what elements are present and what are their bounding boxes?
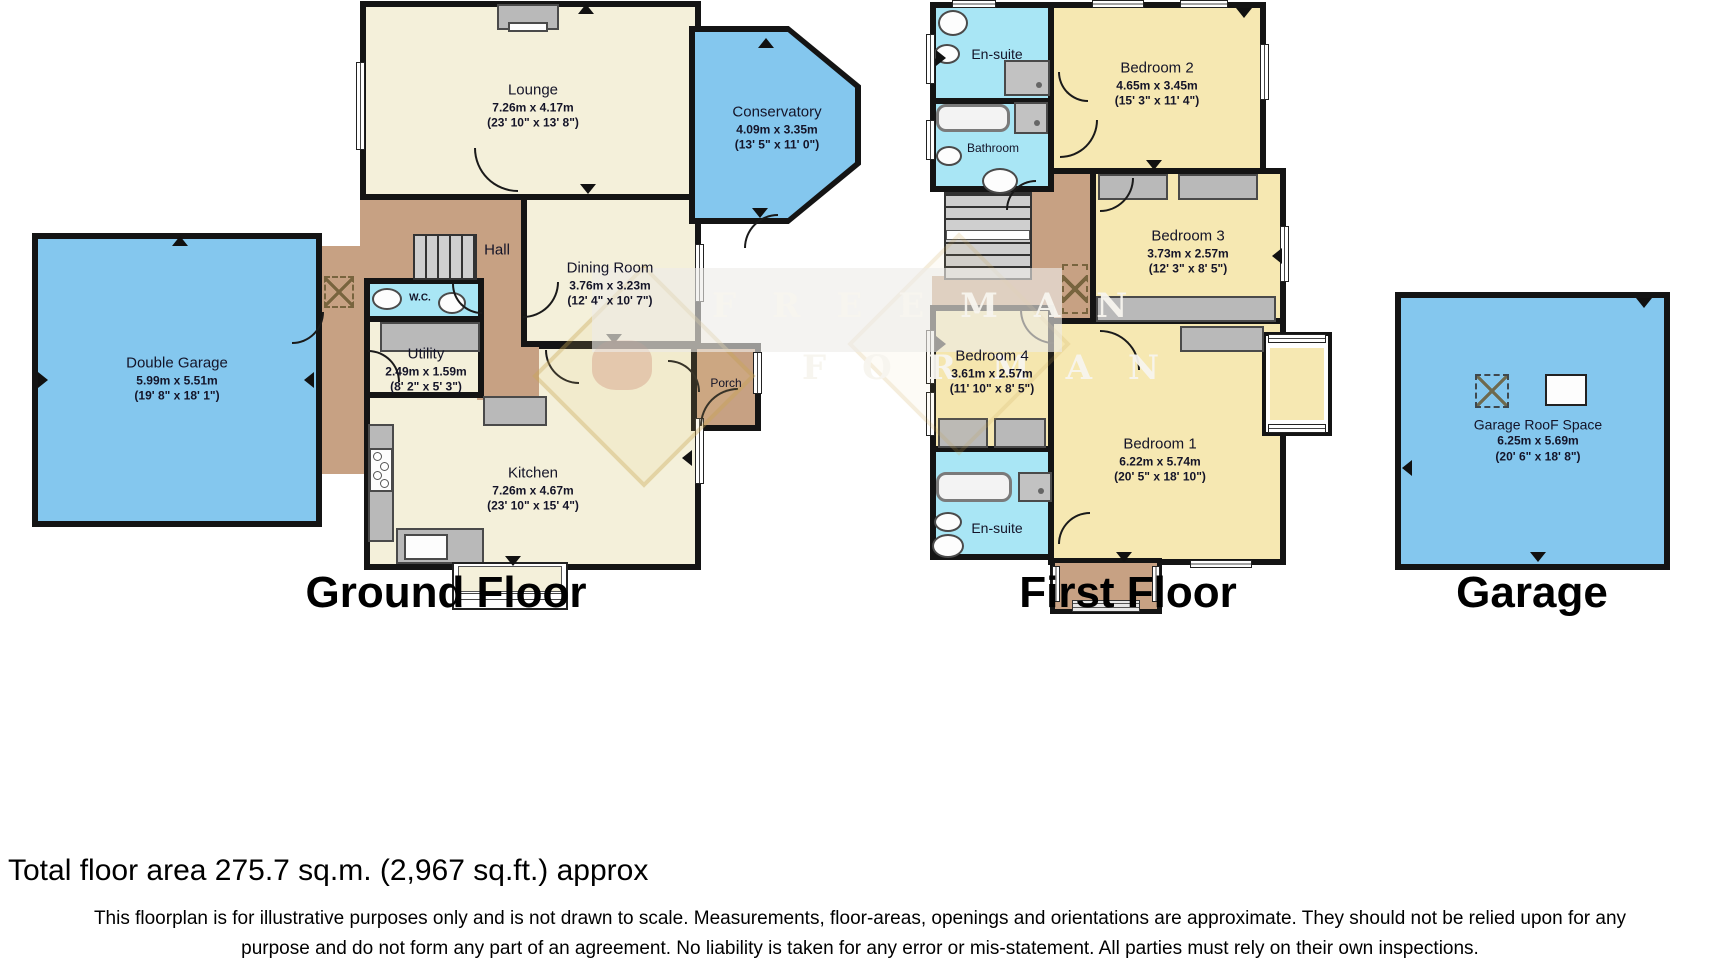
direction-arrow-icon [580, 184, 596, 194]
label-wc: W.C. [409, 292, 431, 305]
window [1260, 44, 1269, 100]
direction-arrow-icon [505, 556, 521, 566]
window [1268, 334, 1326, 343]
direction-arrow-icon [758, 38, 774, 48]
direction-arrow-icon [752, 208, 768, 218]
window [952, 0, 996, 8]
direction-arrow-icon [304, 372, 314, 388]
direction-arrow-icon [1272, 248, 1282, 264]
watermark-line1: FREEMAN [712, 286, 1163, 326]
window [926, 120, 935, 160]
wash-basin [938, 10, 968, 36]
shower [1018, 472, 1052, 502]
title-first-floor: First Floor [1019, 568, 1237, 618]
wash-basin [936, 146, 962, 166]
label-kitchen: Kitchen 7.26m x 4.67m (23' 10" x 15' 4") [487, 464, 579, 515]
direction-arrow-icon [38, 372, 48, 388]
shower [1004, 60, 1050, 96]
window [356, 62, 365, 150]
floorplan-canvas: Lounge 7.26m x 4.17m (23' 10" x 13' 8") … [0, 0, 1720, 968]
bath [936, 472, 1012, 502]
direction-arrow-icon [1146, 160, 1162, 170]
bay-window [1262, 332, 1332, 436]
label-utility: Utility 2.49m x 1.59m (8' 2" x 5' 3") [385, 345, 466, 396]
direction-arrow-icon [1530, 552, 1546, 562]
window [753, 352, 762, 394]
dashed-box [324, 276, 354, 308]
wardrobe [994, 418, 1046, 448]
label-dining: Dining Room 3.76m x 3.23m (12' 4" x 10' … [567, 259, 654, 310]
label-double-garage: Double Garage 5.99m x 5.51m (19' 8" x 18… [126, 354, 228, 405]
loft-hatch [1545, 374, 1587, 406]
toilet [372, 288, 402, 310]
direction-arrow-icon [682, 450, 692, 466]
label-bedroom2: Bedroom 2 4.65m x 3.45m (15' 3" x 11' 4"… [1115, 59, 1199, 110]
kitchen-sink [404, 534, 448, 560]
label-ensuite-bottom: En-suite [971, 519, 1022, 537]
staircase [413, 234, 477, 280]
worktop [483, 396, 547, 426]
label-lounge: Lounge 7.26m x 4.17m (23' 10" x 13' 8") [487, 81, 579, 132]
window [1190, 560, 1252, 568]
total-floor-area: Total floor area 275.7 sq.m. (2,967 sq.f… [8, 854, 648, 888]
direction-arrow-icon [1636, 298, 1652, 308]
label-bathroom: Bathroom [967, 141, 1019, 157]
title-garage: Garage [1456, 568, 1608, 618]
direction-arrow-icon [1402, 460, 1412, 476]
disclaimer-line1: This floorplan is for illustrative purpo… [0, 908, 1720, 930]
label-garage-roof-space: Garage RooF Space 6.25m x 5.69m (20' 6" … [1474, 415, 1602, 464]
label-bedroom4: Bedroom 4 3.61m x 2.57m (11' 10" x 8' 5"… [950, 347, 1034, 398]
direction-arrow-icon [1116, 552, 1132, 562]
wash-basin [932, 534, 964, 558]
direction-arrow-icon [936, 50, 946, 66]
window [1268, 424, 1326, 433]
label-hall: Hall [484, 240, 510, 260]
wardrobe [1178, 174, 1258, 200]
label-bedroom3: Bedroom 3 3.73m x 2.57m (12' 3" x 8' 5") [1147, 227, 1228, 278]
label-bedroom1: Bedroom 1 6.22m x 5.74m (20' 5" x 18' 10… [1114, 435, 1206, 486]
title-ground-floor: Ground Floor [305, 568, 586, 618]
label-ensuite-top: En-suite [971, 45, 1022, 63]
bath [936, 104, 1010, 132]
label-conservatory: Conservatory 4.09m x 3.35m (13' 5" x 11'… [732, 103, 821, 154]
hob [369, 448, 393, 492]
window [1180, 0, 1228, 8]
window [1092, 0, 1144, 8]
direction-arrow-icon [172, 236, 188, 246]
window [926, 34, 935, 84]
disclaimer-line2: purpose and do not form any part of an a… [0, 938, 1720, 960]
direction-arrow-icon [578, 4, 594, 14]
direction-arrow-icon [1236, 8, 1252, 18]
toilet [934, 512, 962, 532]
chimney-hearth [508, 22, 548, 32]
shower [1014, 102, 1048, 134]
dashed-box [1475, 374, 1509, 408]
label-porch: Porch [710, 376, 741, 392]
